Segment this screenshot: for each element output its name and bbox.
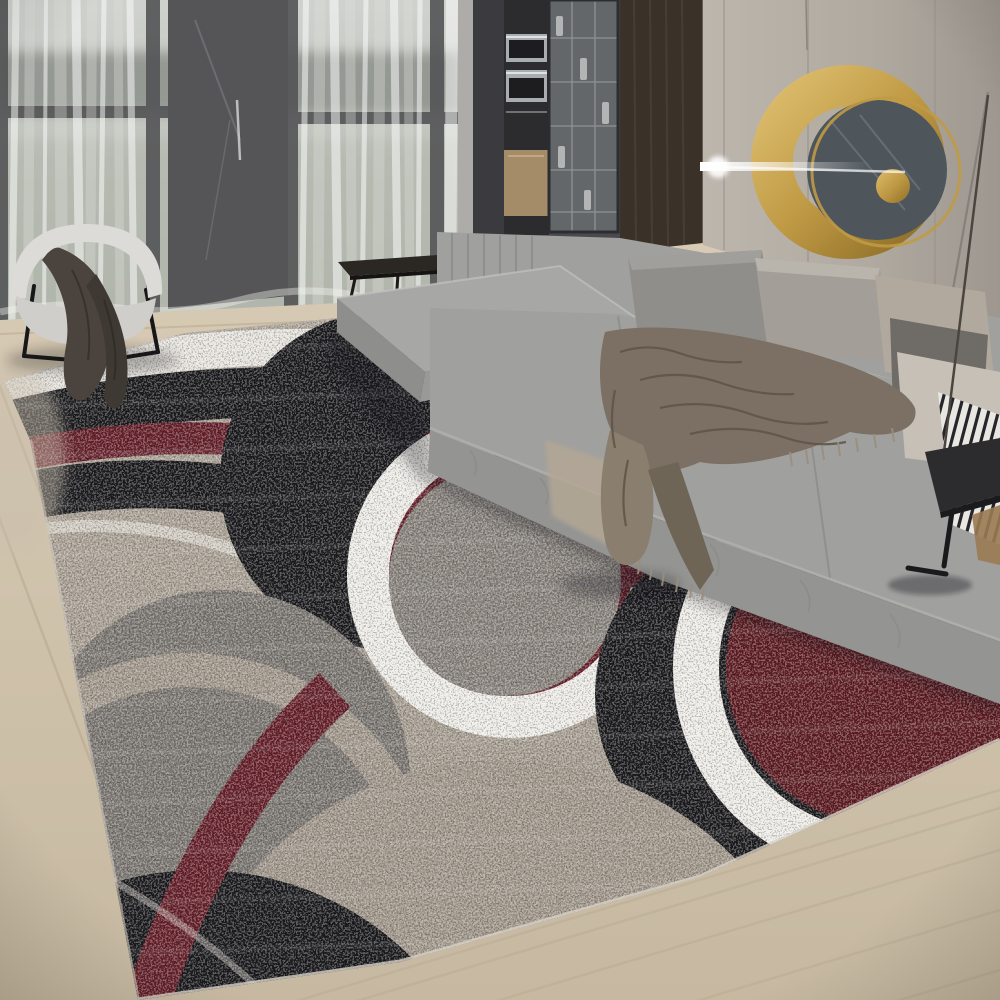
living-room-photo: Modern living room photo: gray L-shaped … (0, 0, 1000, 1000)
scene-canvas (0, 0, 1000, 1000)
vignette (0, 0, 1000, 1000)
